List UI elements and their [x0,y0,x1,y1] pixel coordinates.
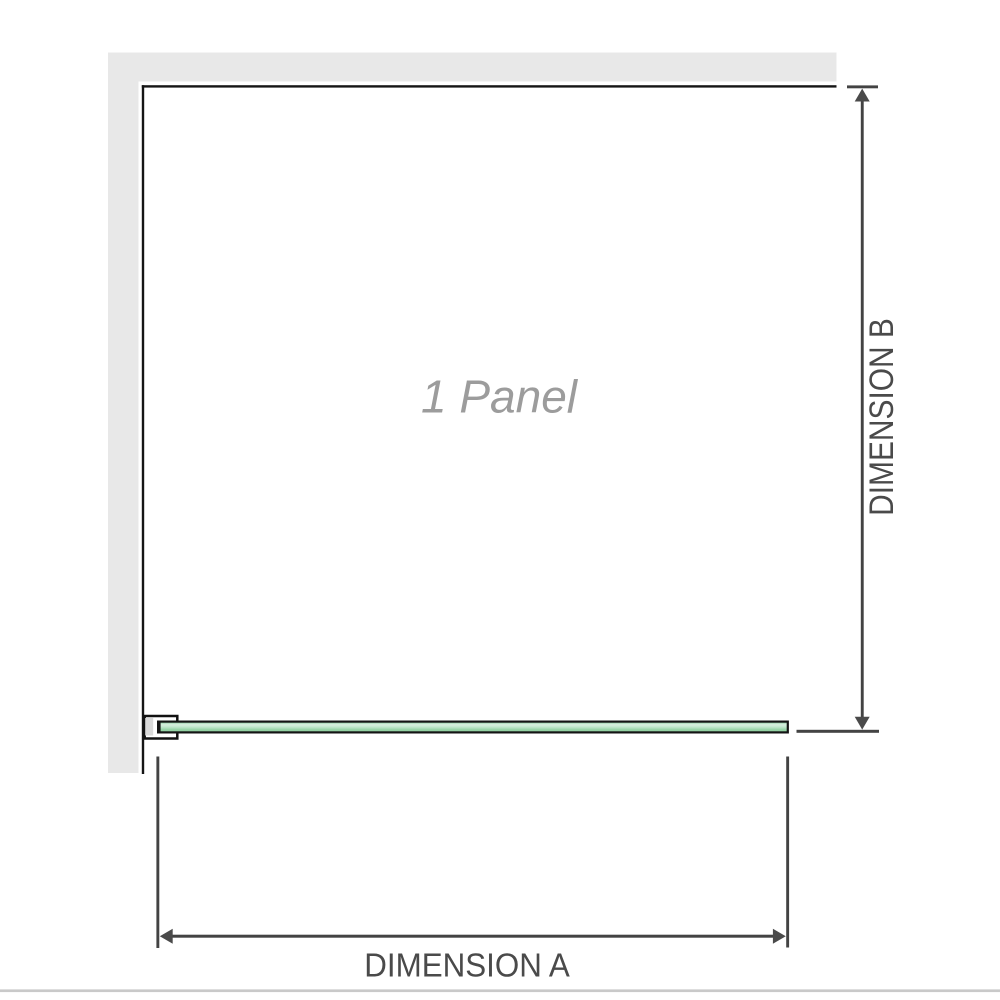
svg-text:1 Panel: 1 Panel [421,371,579,423]
svg-text:DIMENSION B: DIMENSION B [862,318,900,516]
svg-text:DIMENSION A: DIMENSION A [364,947,570,984]
